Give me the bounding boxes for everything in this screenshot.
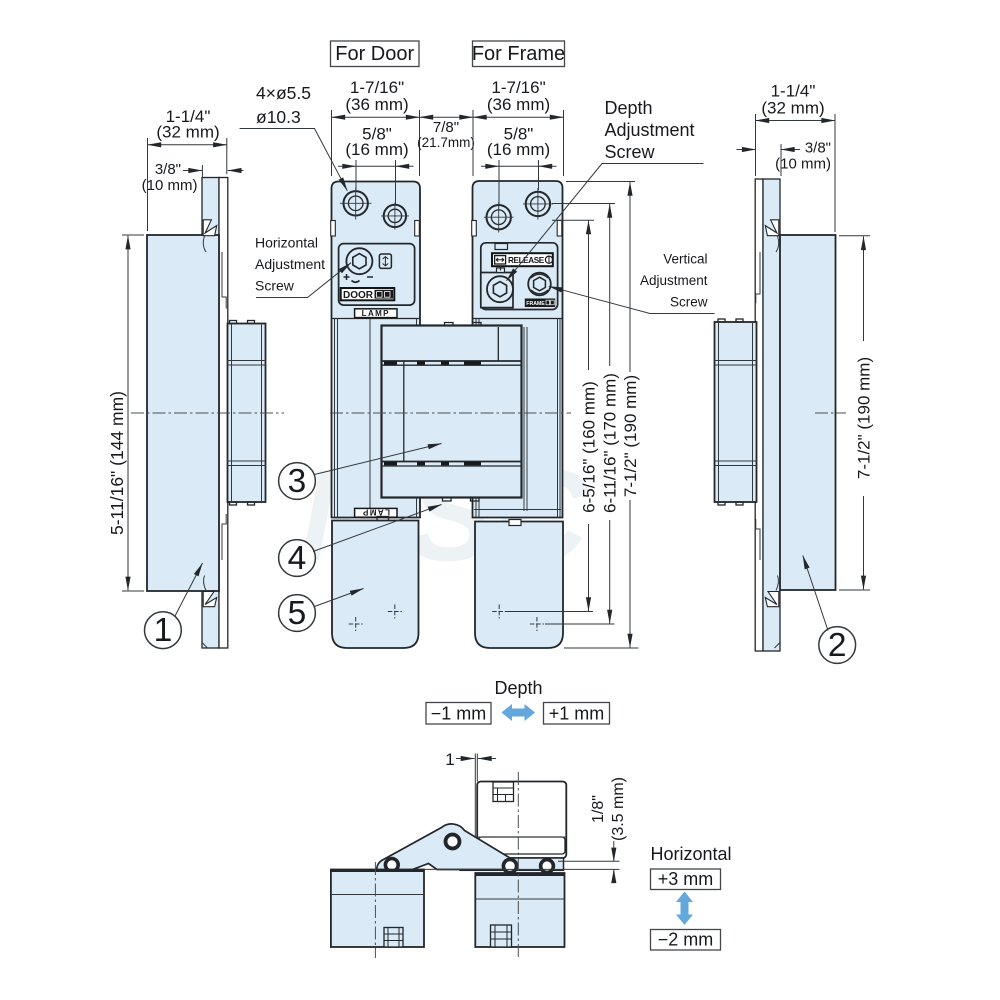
svg-text:Horizontal: Horizontal (255, 235, 318, 251)
svg-text:(32 mm): (32 mm) (761, 99, 824, 118)
svg-text:For Door: For Door (335, 43, 414, 65)
svg-text:7-1/2" (190 mm): 7-1/2" (190 mm) (855, 357, 874, 479)
svg-text:1/8": 1/8" (590, 795, 607, 823)
svg-text:Screw: Screw (670, 295, 708, 310)
svg-text:+1 mm: +1 mm (549, 704, 605, 724)
svg-text:1: 1 (445, 750, 454, 769)
svg-text:5: 5 (288, 595, 307, 632)
svg-text:DOOR: DOOR (343, 290, 374, 301)
svg-text:(21.7mm): (21.7mm) (417, 135, 475, 150)
svg-text:4×ø5.5: 4×ø5.5 (256, 83, 311, 103)
svg-text:Adjustment: Adjustment (605, 120, 695, 140)
svg-text:(16 mm): (16 mm) (487, 140, 550, 159)
svg-text:3: 3 (288, 463, 307, 500)
svg-text:Adjustment: Adjustment (640, 273, 708, 288)
svg-text:Depth: Depth (605, 98, 653, 118)
svg-text:FRAME: FRAME (526, 301, 545, 307)
svg-text:−2 mm: −2 mm (658, 930, 714, 950)
svg-text:ø10.3: ø10.3 (256, 107, 301, 127)
svg-text:(10 mm): (10 mm) (142, 177, 198, 194)
svg-text:(32 mm): (32 mm) (156, 123, 219, 142)
svg-text:2: 2 (828, 627, 847, 664)
svg-text:Adjustment: Adjustment (255, 256, 325, 272)
svg-text:For Frame: For Frame (472, 43, 565, 65)
svg-text:6-5/16" (160 mm): 6-5/16" (160 mm) (580, 381, 599, 513)
svg-text:3/8": 3/8" (155, 161, 181, 178)
svg-text:3/8": 3/8" (805, 140, 831, 157)
svg-text:LAMP: LAMP (362, 507, 390, 516)
svg-text:1: 1 (154, 612, 173, 649)
svg-text:(36 mm): (36 mm) (345, 95, 408, 114)
svg-text:−1 mm: −1 mm (431, 704, 487, 724)
svg-text:(10 mm): (10 mm) (775, 156, 831, 173)
svg-text:7/8": 7/8" (433, 119, 459, 136)
svg-text:4: 4 (288, 540, 307, 577)
svg-text:(36 mm): (36 mm) (487, 95, 550, 114)
svg-text:5-11/16" (144 mm): 5-11/16" (144 mm) (107, 391, 127, 535)
svg-text:(3.5 mm): (3.5 mm) (610, 777, 627, 841)
svg-text:LAMP: LAMP (362, 309, 390, 318)
svg-text:Depth: Depth (494, 678, 542, 698)
svg-text:6-11/16" (170 mm): 6-11/16" (170 mm) (601, 373, 620, 513)
svg-text:7-1/2" (190 mm): 7-1/2" (190 mm) (621, 375, 640, 497)
svg-text:Horizontal: Horizontal (650, 844, 731, 864)
svg-text:Screw: Screw (255, 278, 295, 294)
svg-text:Vertical: Vertical (663, 252, 707, 267)
svg-text:(16 mm): (16 mm) (345, 140, 408, 159)
svg-text:+3 mm: +3 mm (658, 869, 714, 889)
svg-text:RELEASE: RELEASE (508, 256, 545, 265)
svg-text:Screw: Screw (605, 142, 656, 162)
